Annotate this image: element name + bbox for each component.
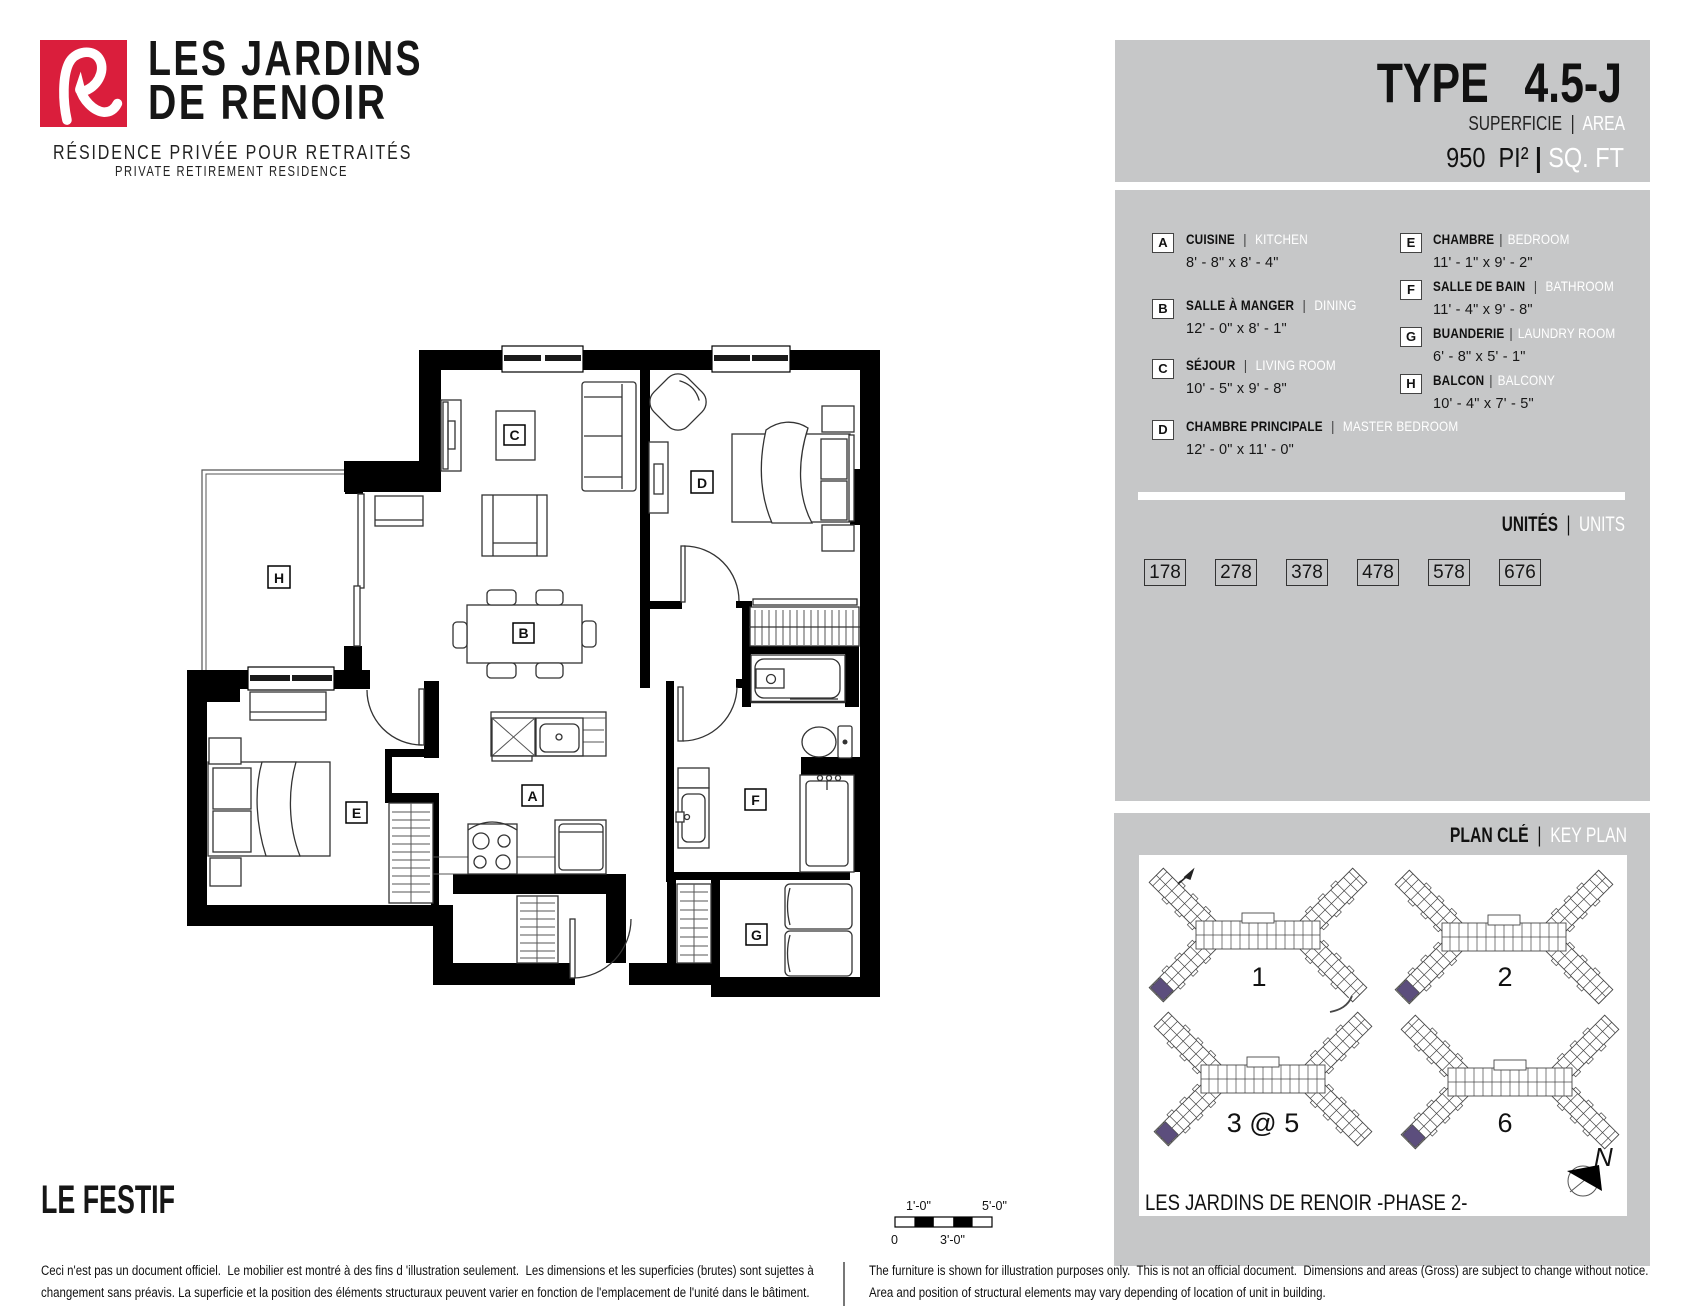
svg-text:N: N	[1594, 1142, 1613, 1172]
svg-text:D: D	[697, 475, 707, 491]
svg-text:B: B	[518, 625, 528, 641]
svg-text:1: 1	[1251, 962, 1266, 992]
svg-text:3 @ 5: 3 @ 5	[1227, 1108, 1299, 1138]
svg-text:2: 2	[1497, 962, 1512, 992]
svg-text:G: G	[751, 927, 762, 943]
svg-text:1'-0": 1'-0"	[906, 1199, 931, 1213]
svg-text:3'-0": 3'-0"	[940, 1233, 965, 1247]
svg-text:0: 0	[891, 1233, 898, 1247]
svg-text:6: 6	[1497, 1108, 1512, 1138]
svg-text:E: E	[352, 805, 361, 821]
svg-text:H: H	[274, 570, 284, 586]
svg-text:A: A	[527, 788, 537, 804]
svg-text:C: C	[509, 427, 519, 443]
svg-text:5'-0": 5'-0"	[982, 1199, 1007, 1213]
svg-text:F: F	[751, 792, 760, 808]
